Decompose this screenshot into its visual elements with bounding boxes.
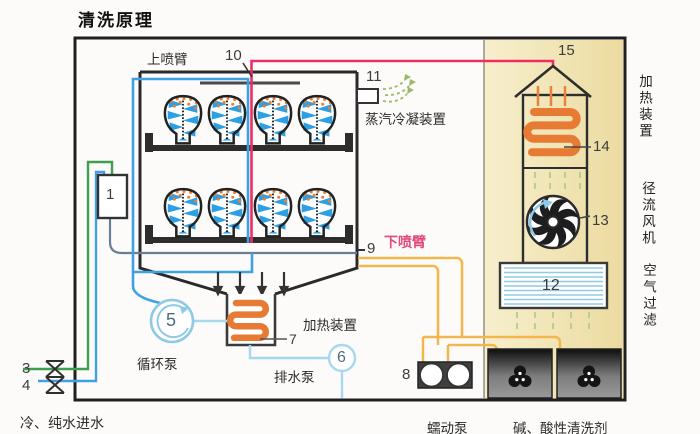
callout-6: 6 [337, 349, 346, 367]
cleaning-principle-diagram: 清洗原理 上喷臂 蒸汽冷凝装置 下喷臂 加热装置 循环泵 排水泵 蠕动泵 碱、酸… [0, 0, 700, 434]
callout-4: 4 [22, 377, 30, 394]
upper-spray-arm-label: 上喷臂 [147, 48, 188, 68]
callout-8: 8 [402, 366, 410, 383]
circulation-pump-label: 循环泵 [137, 353, 178, 373]
sump-heater-label: 加热装置 [303, 314, 357, 334]
callout-1: 1 [106, 186, 114, 203]
drain-arrows [215, 272, 288, 294]
lower-spray-arm-label: 下喷臂 [384, 232, 426, 252]
callout-14: 14 [593, 138, 610, 155]
callout-5: 5 [166, 310, 176, 331]
drain-pump-label: 排水泵 [274, 366, 315, 386]
page-title: 清洗原理 [78, 6, 154, 31]
side-label-heater: 加热装置 [634, 74, 654, 140]
glassware-upper-row [165, 96, 335, 143]
inlet-valves [46, 361, 64, 393]
peristaltic-pump-label: 蠕动泵 [427, 417, 468, 434]
callout-9: 9 [367, 240, 375, 257]
callout-12: 12 [542, 277, 560, 295]
side-label-radial-fan: 径流风机 [637, 181, 657, 247]
callout-13: 13 [592, 212, 609, 229]
peristaltic-pump [418, 362, 472, 388]
steam-condenser-label: 蒸汽冷凝装置 [365, 108, 446, 128]
callout-11: 11 [366, 68, 382, 85]
glassware-lower-row [165, 189, 335, 236]
callout-7: 7 [289, 331, 297, 347]
side-label-air-filter: 空气过滤 [638, 263, 658, 329]
callout-10: 10 [225, 47, 242, 64]
callout-3: 3 [22, 360, 30, 377]
water-inlet-label: 冷、纯水进水 [20, 413, 104, 433]
sump-heater [227, 294, 287, 345]
detergents-label: 碱、酸性清洗剂 [513, 417, 608, 434]
callout-15: 15 [558, 42, 575, 59]
